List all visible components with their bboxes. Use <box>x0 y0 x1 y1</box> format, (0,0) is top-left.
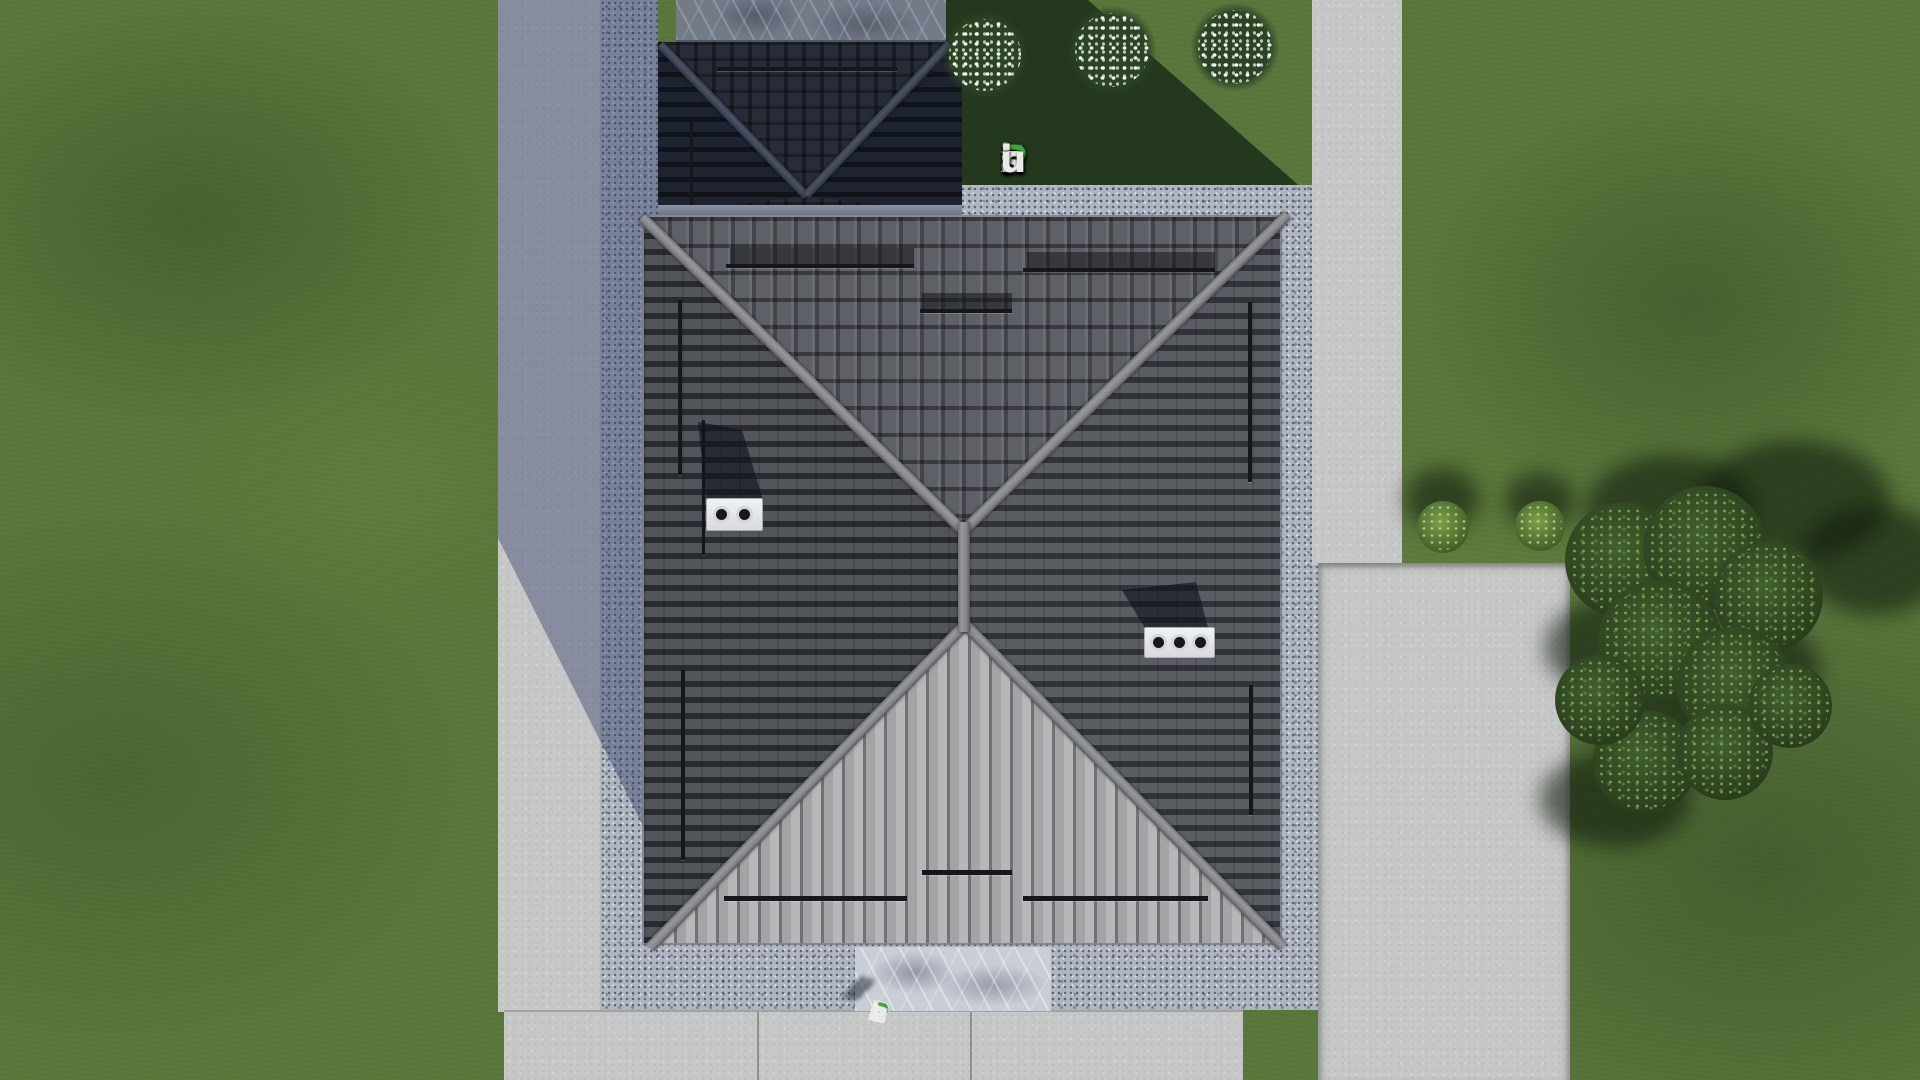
chimney-vent-cap <box>706 498 763 531</box>
snow-rail <box>681 670 685 860</box>
snow-rail <box>1023 268 1215 272</box>
snow-rail <box>726 264 914 268</box>
flower-bush <box>942 12 1028 98</box>
stone-terrace <box>676 0 946 42</box>
tree-canopy <box>1748 664 1832 748</box>
snow-rail <box>1249 685 1253 815</box>
round-bush <box>1417 501 1469 553</box>
logo-letter: u <box>1000 141 1026 178</box>
concrete-seam <box>970 1012 972 1080</box>
vent-hole <box>1192 634 1209 651</box>
vent-hole <box>713 506 730 523</box>
garage-roof <box>658 42 962 215</box>
vent-hole <box>1150 634 1167 651</box>
concrete-seam <box>757 1012 759 1080</box>
snow-rail <box>922 870 1012 875</box>
garage-eave <box>658 205 962 215</box>
patio-right <box>1318 563 1570 1080</box>
site-plan-render: FıxPlans.ru FıxPlans.ru FıxPlans.ru <box>0 0 1920 1080</box>
main-roof <box>642 215 1282 945</box>
flower-bush <box>1191 3 1279 91</box>
snow-rail <box>717 67 897 71</box>
tile-shade-band <box>730 248 914 264</box>
tree-canopy <box>1555 655 1645 745</box>
vent-hole <box>736 506 753 523</box>
snow-rail <box>690 118 693 210</box>
tile-shade-band <box>922 293 1012 309</box>
snow-rail <box>678 300 682 475</box>
walkway-right <box>1312 0 1402 565</box>
chimney-vent-cap <box>1144 627 1215 658</box>
snow-rail <box>920 309 1012 313</box>
round-bush <box>1515 501 1565 551</box>
flower-bush <box>1068 6 1156 94</box>
vent-hole <box>1171 634 1188 651</box>
snow-rail <box>1248 302 1252 482</box>
ridge-cap <box>958 522 970 632</box>
snow-rail <box>1023 896 1208 901</box>
tile-shade-band <box>1027 252 1215 268</box>
snow-rail <box>724 896 907 901</box>
